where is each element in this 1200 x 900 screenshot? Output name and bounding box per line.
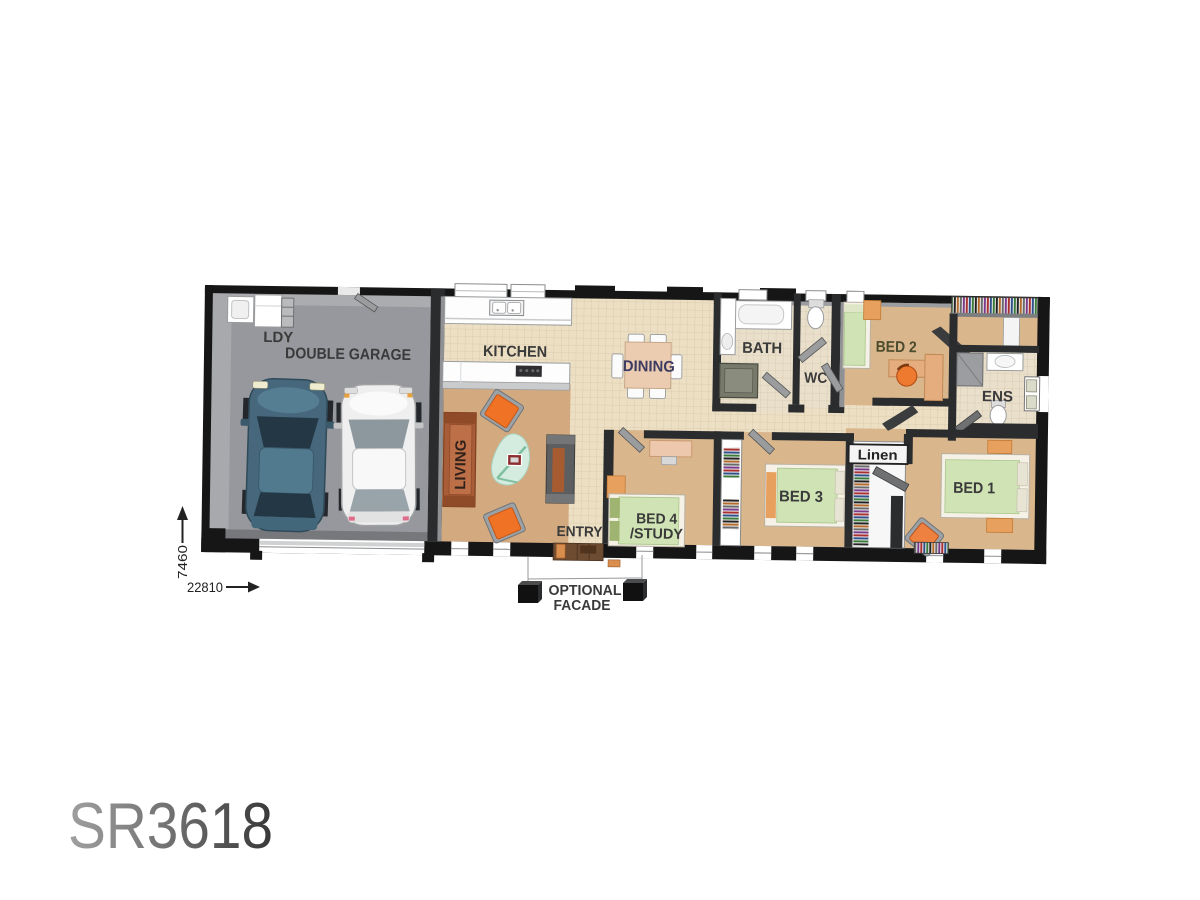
svg-text:BED 1: BED 1 (953, 480, 996, 498)
svg-text:BATH: BATH (742, 340, 782, 358)
svg-text:KITCHEN: KITCHEN (483, 343, 547, 361)
svg-text:FACADE: FACADE (554, 598, 611, 614)
svg-text:SR3618: SR3618 (68, 789, 273, 862)
svg-text:DINING: DINING (623, 358, 675, 376)
svg-text:ENS: ENS (982, 388, 1013, 405)
svg-text:22810: 22810 (187, 580, 223, 595)
svg-text:DOUBLE GARAGE: DOUBLE GARAGE (285, 345, 411, 364)
svg-text:OPTIONAL: OPTIONAL (549, 583, 622, 599)
svg-text:/STUDY: /STUDY (630, 526, 684, 543)
svg-text:ENTRY: ENTRY (556, 524, 603, 541)
svg-text:BED 4: BED 4 (636, 511, 677, 528)
svg-text:LDY: LDY (263, 329, 293, 346)
svg-text:BED 3: BED 3 (779, 488, 824, 506)
svg-text:WC: WC (804, 370, 827, 387)
svg-text:BED 2: BED 2 (876, 339, 917, 357)
svg-text:Linen: Linen (858, 446, 898, 463)
svg-text:7460: 7460 (175, 545, 190, 579)
svg-text:LIVING: LIVING (452, 440, 470, 490)
